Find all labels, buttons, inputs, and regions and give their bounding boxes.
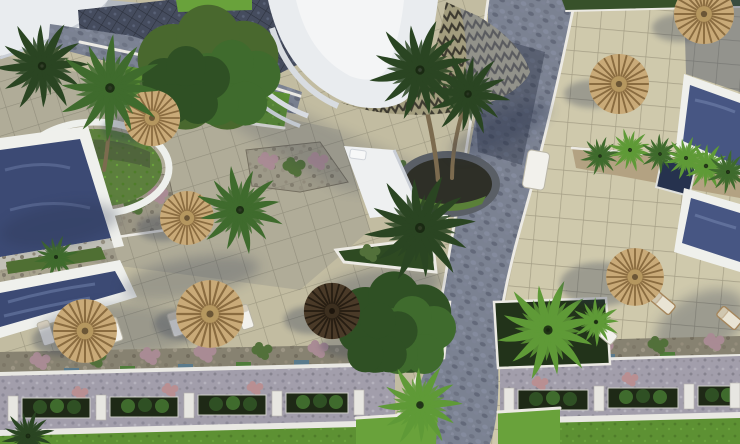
planter-post [730, 383, 740, 408]
hedge-box [198, 395, 266, 415]
resort-aerial-render [0, 0, 740, 444]
hedge-box [22, 398, 90, 418]
lawn-corner [498, 408, 560, 444]
planter-post [594, 386, 604, 411]
bench [349, 149, 366, 160]
hedge-box [110, 397, 178, 417]
planter-post [96, 395, 106, 420]
planter-post [354, 390, 364, 415]
hedge-box [608, 388, 678, 408]
planter-post [272, 391, 282, 416]
planter-post [8, 396, 18, 421]
hedge-box [286, 393, 348, 413]
planter-post [684, 384, 694, 409]
planter-post [184, 393, 194, 418]
planter-post [504, 388, 514, 413]
